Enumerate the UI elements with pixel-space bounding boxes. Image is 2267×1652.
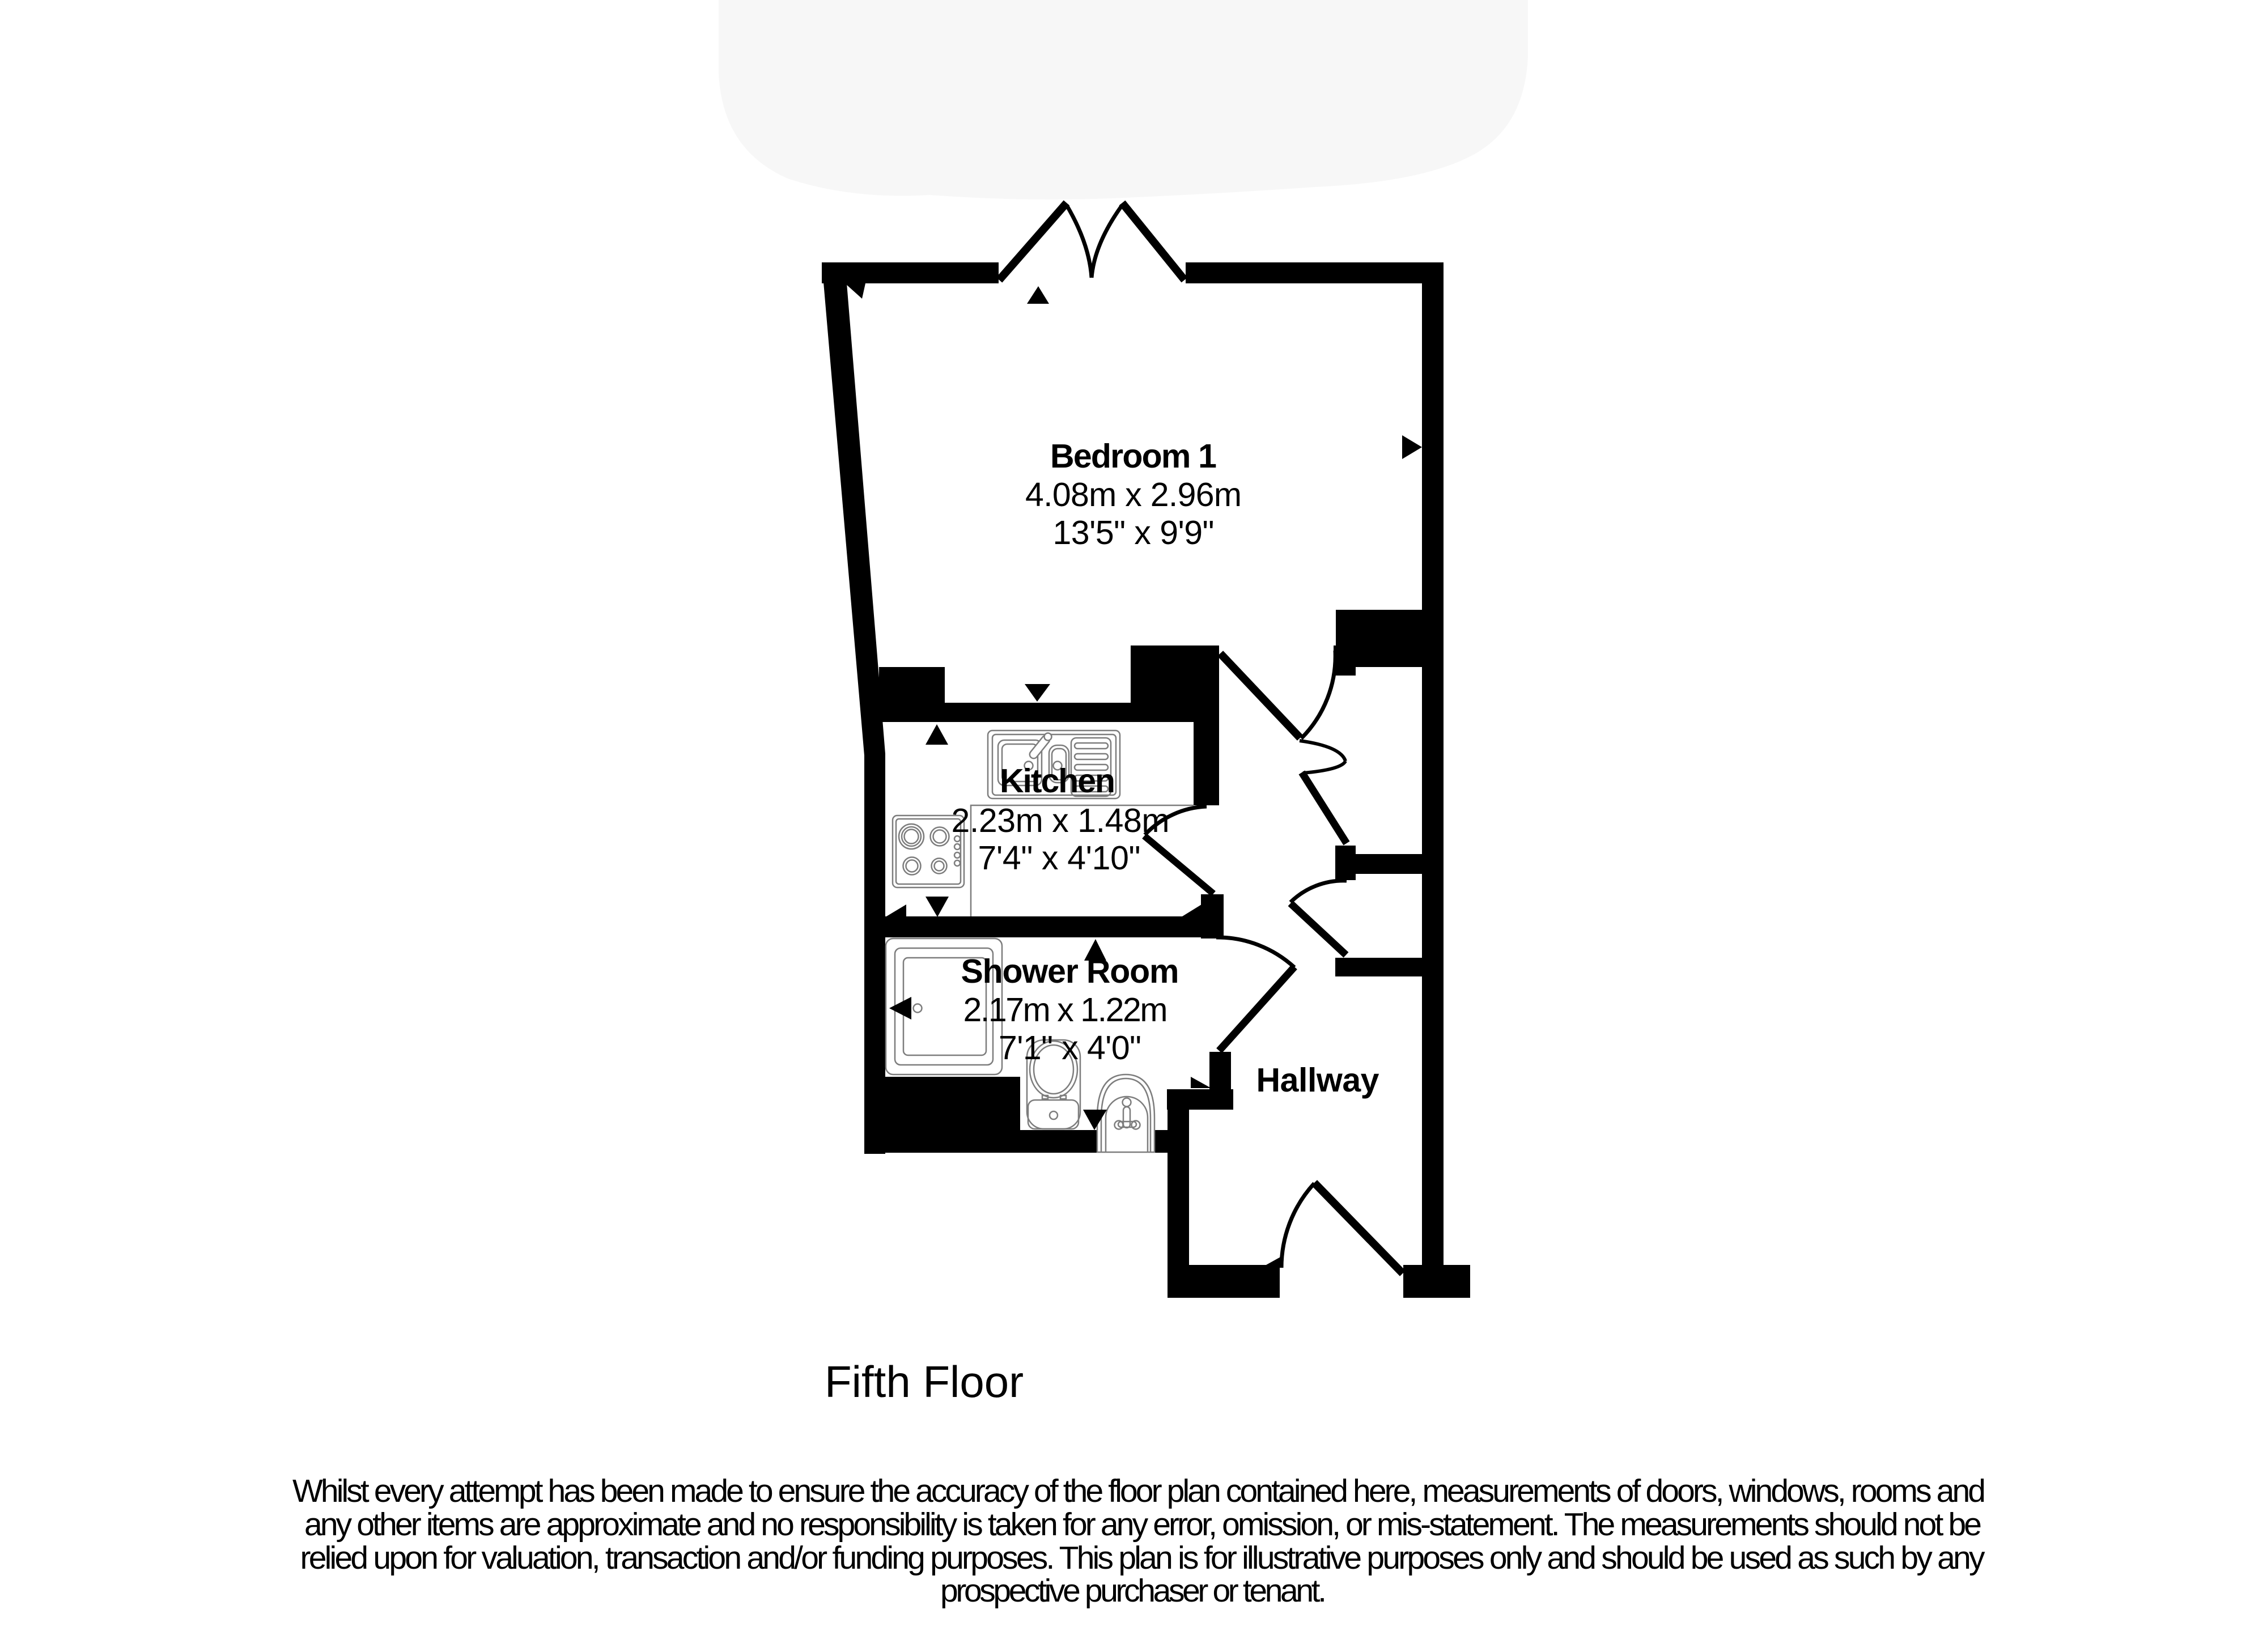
svg-text:Bedroom 1: Bedroom 1 (1050, 438, 1217, 475)
svg-text:4.08m x 2.96m: 4.08m x 2.96m (1025, 476, 1242, 513)
svg-text:Fifth Floor: Fifth Floor (825, 1357, 1024, 1407)
svg-text:2.23m x 1.48m: 2.23m x 1.48m (952, 802, 1170, 839)
svg-text:Hallway: Hallway (1256, 1061, 1379, 1099)
svg-text:7'4" x 4'10": 7'4" x 4'10" (978, 839, 1141, 877)
svg-text:13'5" x 9'9": 13'5" x 9'9" (1053, 514, 1215, 551)
svg-text:relied upon for valuation, tra: relied upon for valuation, transaction a… (300, 1540, 1985, 1576)
svg-text:prospective purchaser or tenan: prospective purchaser or tenant. (940, 1573, 1327, 1609)
svg-text:2.17m x 1.22m: 2.17m x 1.22m (963, 991, 1168, 1029)
svg-text:Whilst every attempt has been: Whilst every attempt has been made to en… (292, 1473, 1986, 1509)
svg-text:any other items are approximat: any other items are approximate and no r… (304, 1506, 1982, 1543)
svg-text:7'1" x 4'0": 7'1" x 4'0" (999, 1029, 1141, 1067)
svg-text:Kitchen: Kitchen (1000, 762, 1115, 800)
svg-text:Shower Room: Shower Room (961, 953, 1179, 990)
